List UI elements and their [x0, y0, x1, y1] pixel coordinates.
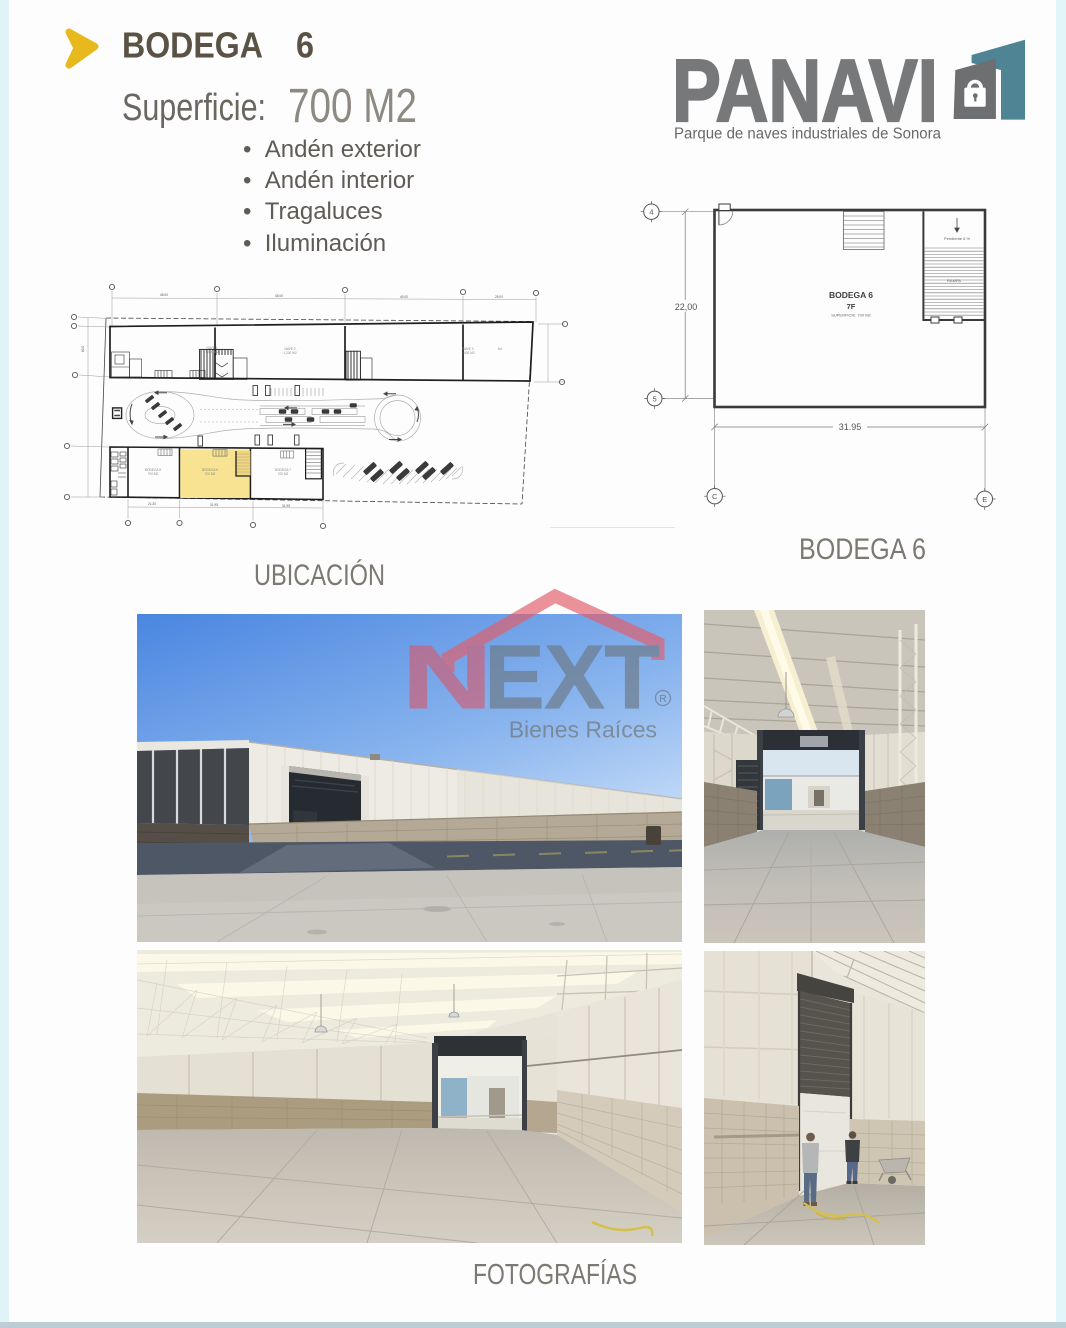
svg-text:BODEGA 6: BODEGA 6: [829, 290, 873, 300]
svg-text:Pendiente 6 %: Pendiente 6 %: [944, 236, 970, 241]
svg-text:Bienes Raíces: Bienes Raíces: [509, 717, 657, 743]
svg-text:31.95: 31.95: [210, 503, 218, 507]
svg-text:7F: 7F: [847, 302, 856, 311]
svg-text:22,00: 22,00: [675, 302, 698, 312]
svg-text:700 M2: 700 M2: [288, 80, 417, 133]
svg-text:FOTOGRAFÍAS: FOTOGRAFÍAS: [473, 1258, 637, 1291]
svg-text:C: C: [712, 492, 718, 501]
svg-text:5: 5: [653, 395, 657, 404]
svg-text:N4: N4: [498, 347, 502, 351]
svg-text:1,500 M2: 1,500 M2: [205, 350, 219, 354]
svg-text:1,400 M2: 1,400 M2: [461, 351, 475, 355]
svg-text:6: 6: [296, 25, 314, 66]
svg-text:EXT: EXT: [485, 628, 660, 728]
svg-text:700 M2: 700 M2: [205, 472, 216, 476]
svg-text:R: R: [659, 694, 666, 705]
svg-text:25.00: 25.00: [495, 295, 503, 299]
svg-text:40.00: 40.00: [400, 295, 408, 299]
svg-text:1,200 M2: 1,200 M2: [283, 351, 297, 355]
svg-text:31.95: 31.95: [839, 422, 862, 432]
svg-text:Parque de naves industriales d: Parque de naves industriales de Sonora: [674, 126, 941, 143]
svg-text:Superficie:: Superficie:: [122, 87, 266, 129]
svg-text:E: E: [982, 495, 987, 504]
svg-text:31.95: 31.95: [282, 504, 290, 508]
svg-text:60.0: 60.0: [81, 346, 85, 352]
svg-text:UBICACIÓN: UBICACIÓN: [254, 559, 385, 592]
svg-text:N: N: [402, 627, 492, 728]
svg-text:BODEGA: BODEGA: [122, 25, 263, 66]
svg-text:700 M2: 700 M2: [148, 472, 159, 476]
svg-text:BODEGA 6: BODEGA 6: [799, 533, 926, 566]
svg-text:45.00: 45.00: [160, 293, 168, 297]
svg-text:700 M2: 700 M2: [278, 472, 289, 476]
svg-text:45.00: 45.00: [275, 294, 283, 298]
svg-text:21.30: 21.30: [148, 502, 156, 506]
svg-text:4: 4: [649, 208, 653, 217]
svg-text:RAMPA: RAMPA: [947, 278, 961, 283]
svg-text:SUPERFICIE: 700 M2: SUPERFICIE: 700 M2: [831, 313, 871, 318]
